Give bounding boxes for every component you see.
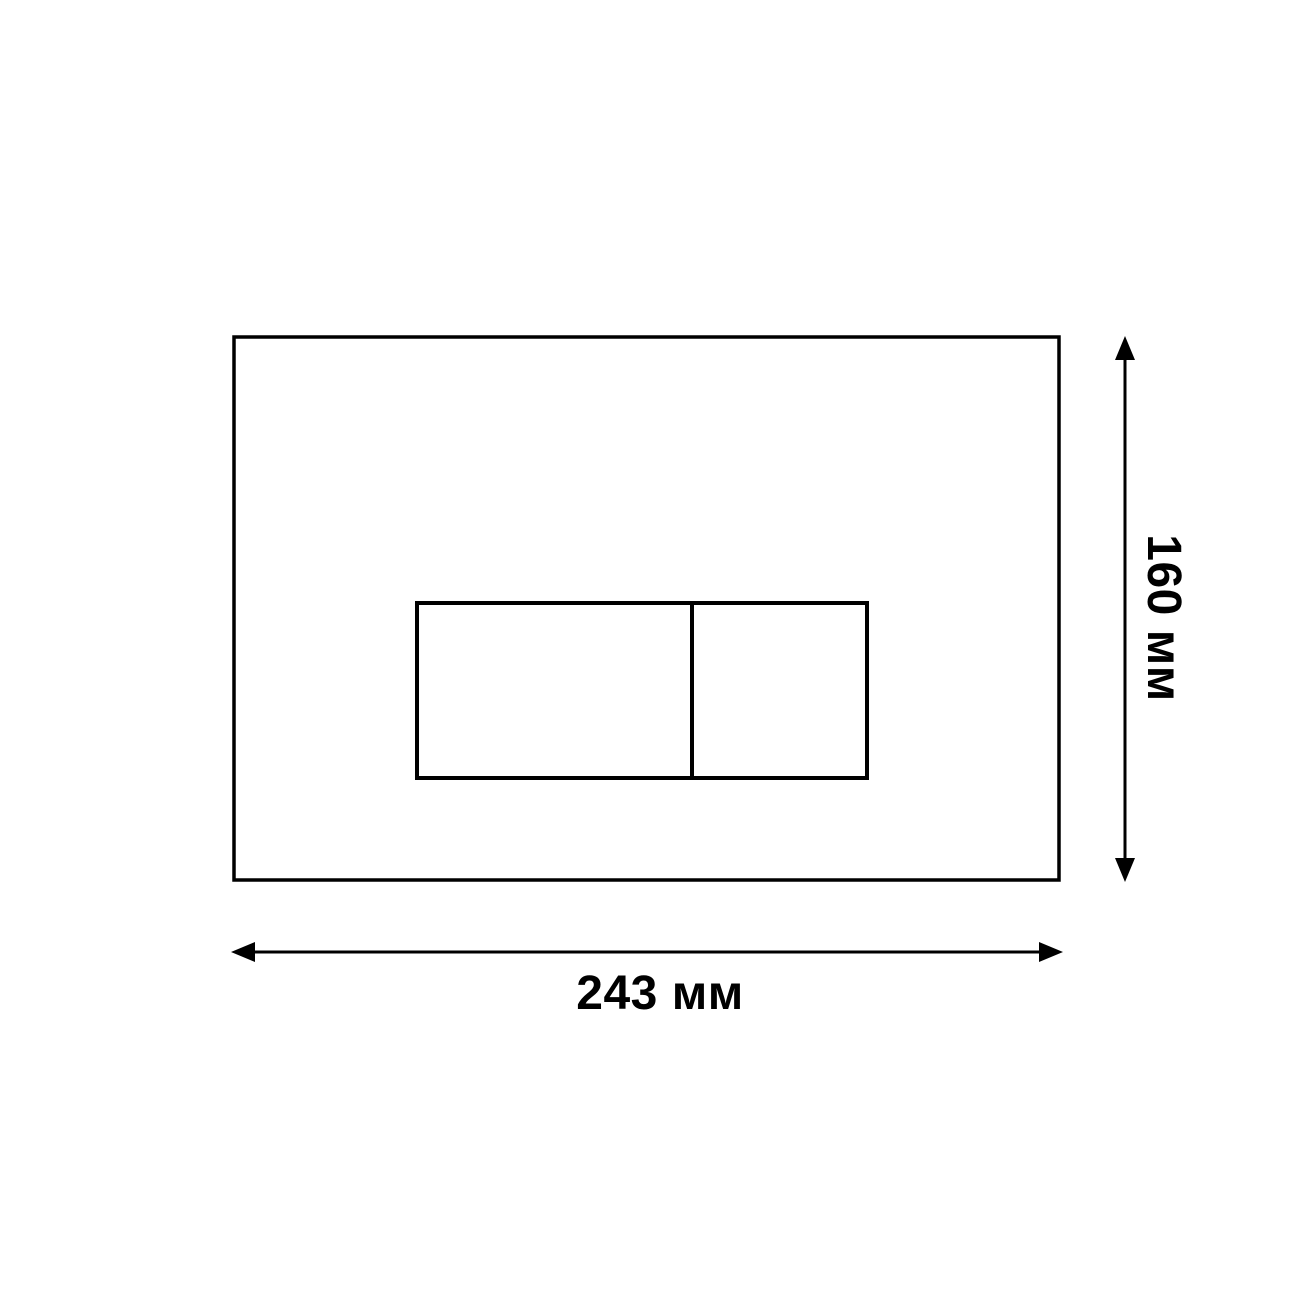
plate-outline — [234, 337, 1059, 880]
drawing-layer — [0, 0, 1300, 1300]
dimension-drawing: 160 мм 243 мм — [0, 0, 1300, 1300]
width-dimension-label: 243 мм — [576, 970, 743, 1018]
arrowhead-down-icon — [1115, 858, 1135, 882]
height-dimension-arrow — [1115, 336, 1135, 882]
arrowhead-right-icon — [1039, 942, 1063, 962]
arrowhead-left-icon — [231, 942, 255, 962]
button-panel-outline — [417, 603, 867, 778]
height-dimension-label: 160 мм — [1139, 534, 1187, 701]
arrowhead-up-icon — [1115, 336, 1135, 360]
width-dimension-arrow — [231, 942, 1063, 962]
